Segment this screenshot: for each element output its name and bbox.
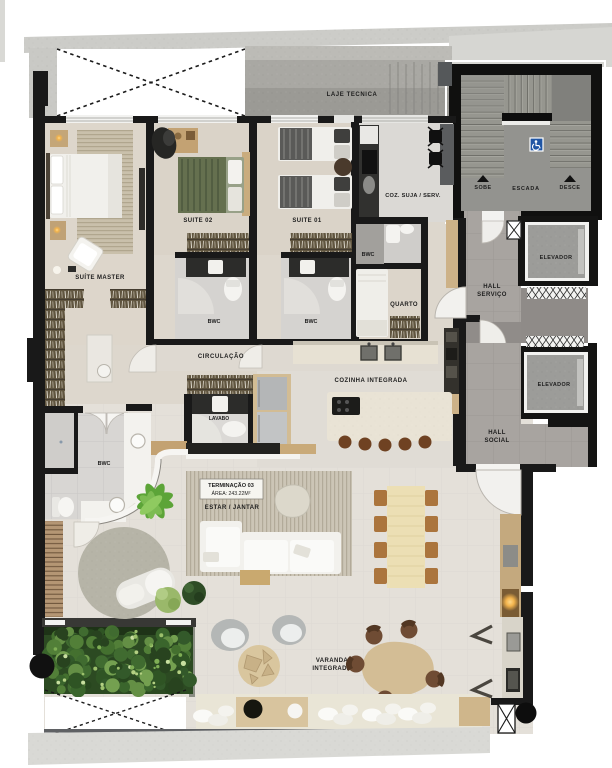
svg-text:SOCIAL: SOCIAL bbox=[484, 438, 509, 444]
svg-text:COZ. SUJA / SERV.: COZ. SUJA / SERV. bbox=[385, 193, 441, 199]
svg-text:ELEVADOR: ELEVADOR bbox=[538, 382, 571, 388]
svg-text:HALL: HALL bbox=[483, 284, 501, 290]
svg-text:SUITE 01: SUITE 01 bbox=[292, 218, 321, 224]
svg-text:ESCADA: ESCADA bbox=[512, 186, 540, 192]
svg-text:HALL: HALL bbox=[488, 430, 506, 436]
svg-text:BWC: BWC bbox=[305, 319, 318, 325]
svg-text:SUÍTE MASTER: SUÍTE MASTER bbox=[75, 273, 125, 281]
svg-text:INTEGRADA: INTEGRADA bbox=[312, 666, 352, 672]
svg-text:ELEVADOR: ELEVADOR bbox=[540, 255, 573, 261]
svg-text:DESCE: DESCE bbox=[559, 185, 580, 191]
svg-text:BWC: BWC bbox=[98, 461, 111, 467]
svg-text:ESTAR / JANTAR: ESTAR / JANTAR bbox=[205, 505, 260, 511]
svg-text:TERMINAÇÃO 03: TERMINAÇÃO 03 bbox=[208, 482, 254, 489]
svg-text:SUITE 02: SUITE 02 bbox=[183, 218, 212, 224]
svg-text:LAVABO: LAVABO bbox=[209, 416, 229, 422]
svg-text:VARANDA: VARANDA bbox=[316, 658, 349, 664]
svg-text:BWC: BWC bbox=[208, 319, 221, 325]
svg-text:LAJE TECNICA: LAJE TECNICA bbox=[327, 92, 378, 98]
svg-text:COZINHA INTEGRADA: COZINHA INTEGRADA bbox=[335, 378, 408, 384]
svg-text:SERVIÇO: SERVIÇO bbox=[477, 292, 507, 298]
svg-text:QUARTO: QUARTO bbox=[390, 302, 418, 308]
svg-text:ÁREA: 243.22M²: ÁREA: 243.22M² bbox=[212, 490, 251, 497]
svg-text:BWC: BWC bbox=[362, 252, 375, 258]
svg-text:SOBE: SOBE bbox=[474, 185, 491, 191]
svg-text:CIRCULAÇÃO: CIRCULAÇÃO bbox=[198, 353, 244, 360]
